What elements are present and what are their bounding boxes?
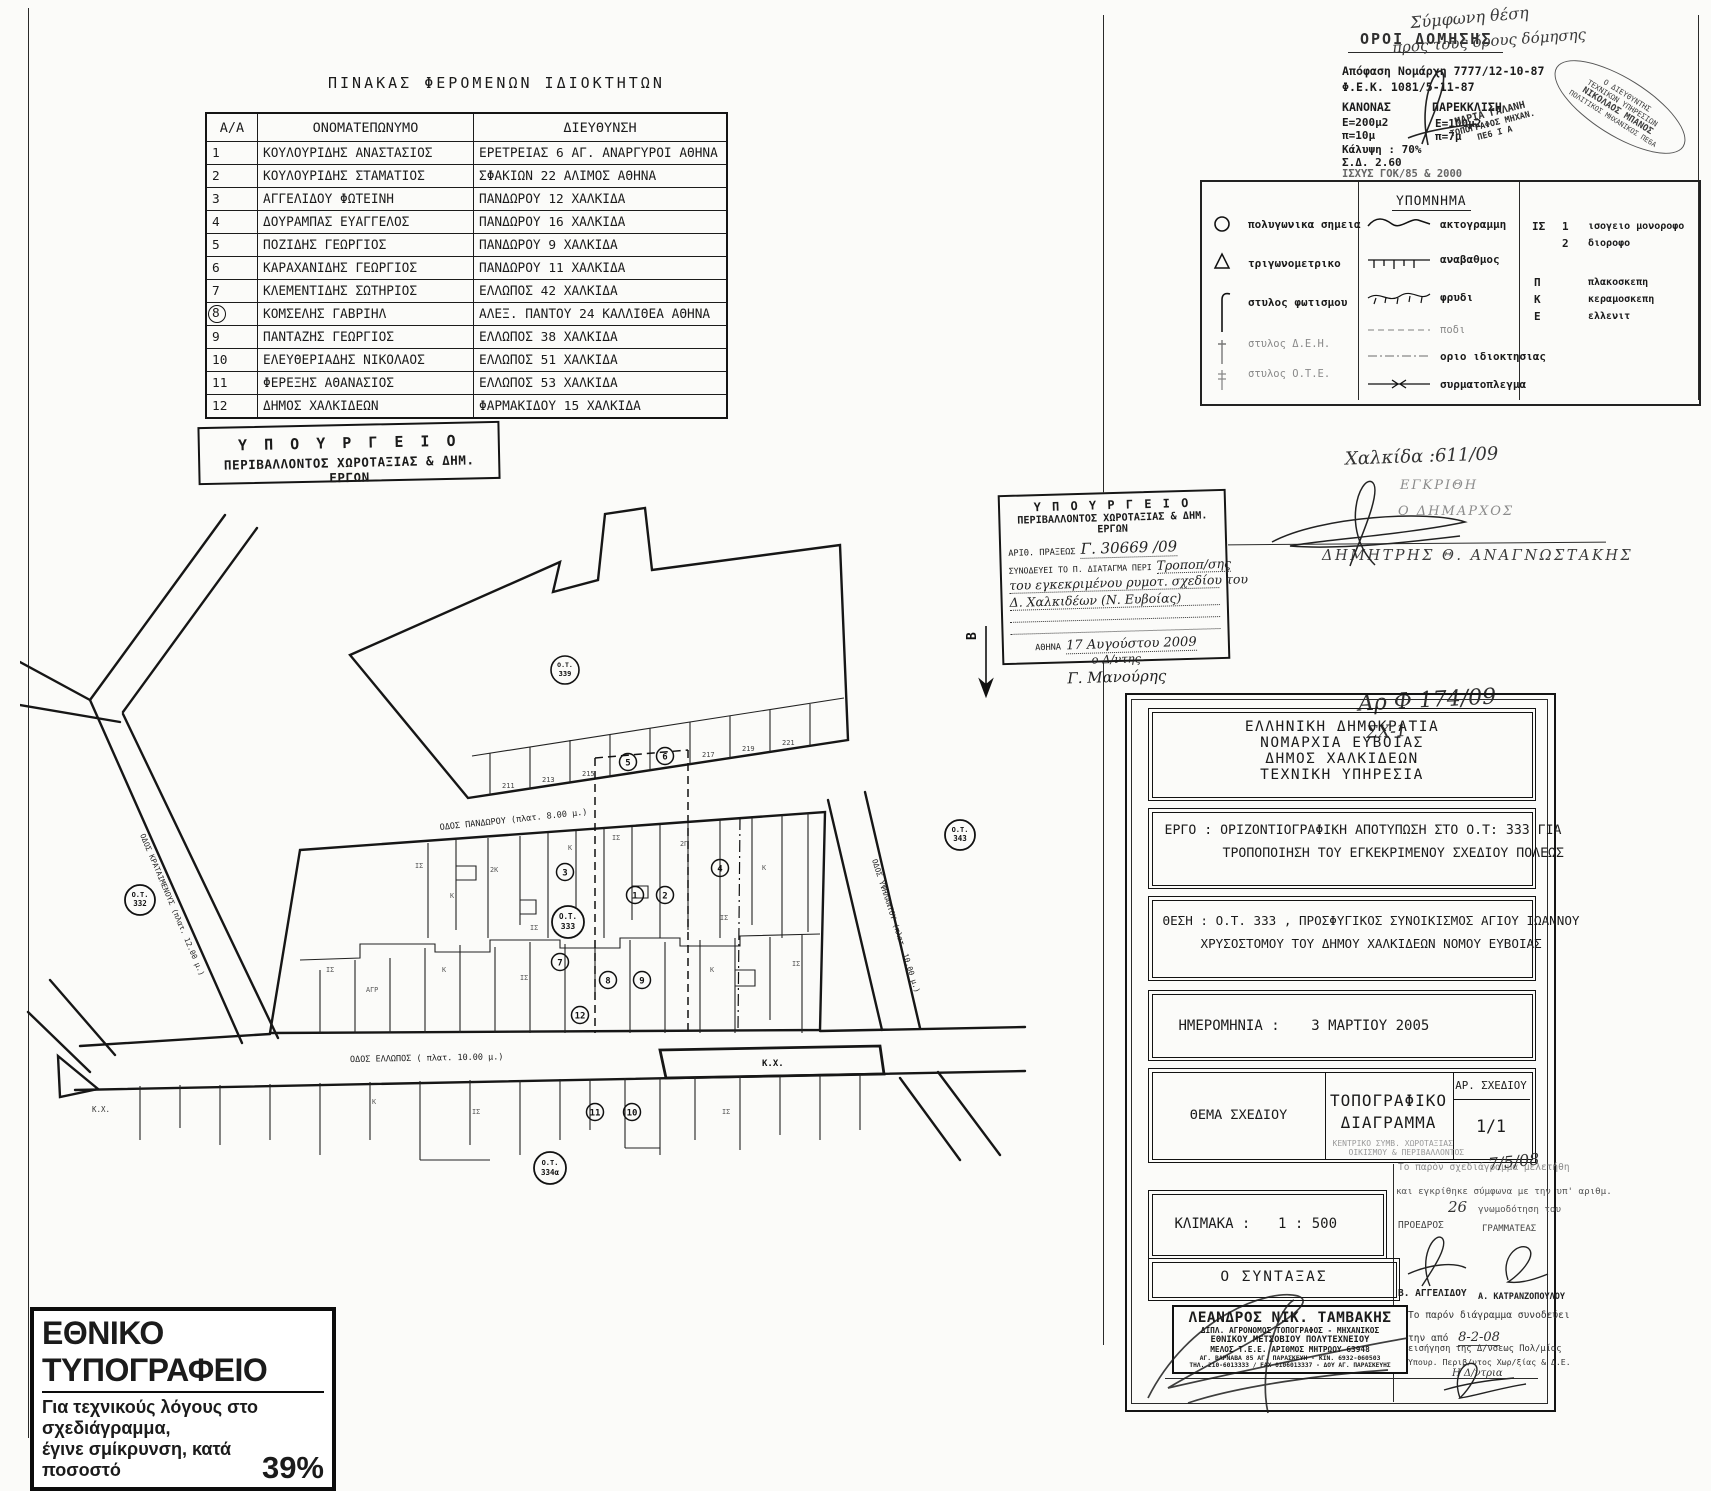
table-row: 10ΕΛΕΥΘΕΡΙΑΔΗΣ ΝΙΚΟΛΑΟΣΕΛΛΩΠΟΣ 51 ΧΑΛΚΙΔ… [206, 349, 727, 372]
oroi-isxys: ΙΣΧΥΣ ΓΟΚ/85 & 2000 [1342, 168, 1462, 180]
north-arrow: Β [962, 618, 1008, 708]
circled-9: 9 [634, 972, 651, 989]
svg-text:ΙΣ: ΙΣ [720, 914, 728, 922]
approval-name-katranzopoulou: Α. ΚΑΤΡΑΝΖΟΠΟΥΛΟΥ [1478, 1292, 1565, 1302]
brow-icon [1368, 293, 1430, 304]
klimaka-label: ΚΛΙΜΑΚΑ : [1175, 1216, 1251, 1232]
upper-block-outline [350, 508, 848, 798]
national-printing-box: ΕΘΝΙΚΟ ΤΥΠΟΓΡΑΦΕΙΟ Για τεχνικούς λόγους … [30, 1307, 336, 1491]
signature-top-right [1398, 60, 1478, 150]
cell-name: ΑΓΓΕΛΙΔΟΥ ΦΩΤΕΙΝΗ [258, 188, 474, 211]
svg-text:Κ: Κ [450, 892, 455, 900]
svg-text:2: 2 [662, 892, 667, 902]
approval-note-1: Το παρόν σχεδιάγραμμα μελετήθη [1398, 1162, 1570, 1173]
thesi-box: ΘΕΣΗ : Ο.Τ. 333 , ΠΡΟΣΦΥΓΙΚΟΣ ΣΥΝΟΙΚΙΣΜΟ… [1148, 896, 1536, 981]
faint-stamp-line2: ΟΙΚΙΣΜΟΥ & ΠΕΡΙΒΑΛΛΟΝΤΟΣ [1349, 1148, 1465, 1157]
svg-text:ΙΣ: ΙΣ [722, 1108, 730, 1116]
cell-no: 5 [206, 234, 258, 257]
legend-k-label: κεραμοσκεπη [1588, 294, 1654, 305]
svg-text:Κ: Κ [372, 1098, 377, 1106]
thema-box: ΘΕΜΑ ΣΧΕΔΙΟΥ ΤΟΠΟΓΡΑΦΙΚΟ ΔΙΑΓΡΑΜΜΑ ΑΡ. Σ… [1148, 1068, 1536, 1163]
agency-line2: ΝΟΜΑΡΧΙΑ ΕΥΒΟΙΑΣ [1153, 735, 1532, 751]
signature-directress [1430, 1356, 1530, 1402]
date-label: ΗΜΕΡΟΜΗΝΙΑ : [1179, 1018, 1280, 1034]
svg-text:215: 215 [582, 770, 595, 778]
property-dashdot-line [738, 818, 740, 1030]
thema-value1: ΤΟΠΟΓΡΑΦΙΚΟ [1325, 1091, 1453, 1110]
cell-no: 7 [206, 280, 258, 303]
svg-text:2Κ: 2Κ [490, 866, 499, 874]
stamp-praxis-label: ΑΡΙΘ. ΠΡΑΞΕΩΣ [1008, 547, 1076, 559]
coastline-icon [1368, 219, 1430, 226]
table-row: 9ΠΑΝΤΑΖΗΣ ΓΕΩΡΓΙΟΣΕΛΛΩΠΟΣ 38 ΧΑΛΚΙΔΑ [206, 326, 727, 349]
svg-text:ΙΣ: ΙΣ [472, 1108, 480, 1116]
ergo-box: ΕΡΓΟ : ΟΡΙΖΟΝΤΙΟΓΡΑΦΙΚΗ ΑΠΟΤΥΠΩΣΗ ΣΤΟ Ο.… [1148, 808, 1536, 889]
cell-addr: ΕΛΛΩΠΟΣ 42 ΧΑΛΚΙΔΑ [474, 280, 728, 303]
svg-text:219: 219 [742, 745, 755, 753]
col-name: ΟΝΟΜΑΤΕΠΩΝΥΜΟ [258, 113, 474, 142]
block-circle-343: Ο.Τ. 343 [945, 820, 975, 850]
oroi-e-kanonas: Ε=200μ2 [1342, 116, 1388, 129]
thesi-line1: ΘΕΣΗ : Ο.Τ. 333 , ΠΡΟΣΦΥΓΙΚΟΣ ΣΥΝΟΙΚΙΣΜΟ… [1163, 913, 1532, 928]
cell-no: 1 [206, 142, 258, 165]
svg-text:Ο.Τ.: Ο.Τ. [557, 661, 573, 669]
stamp-praxis-value: Γ. 30669 /09 [1080, 537, 1177, 559]
svg-text:6: 6 [662, 753, 667, 763]
legend-label-fence: συρματοπλεγμα [1440, 378, 1526, 391]
cell-no: 6 [206, 257, 258, 280]
cell-addr: ΕΛΛΩΠΟΣ 38 ΧΑΛΚΙΔΑ [474, 326, 728, 349]
cadastral-map: ΟΔΟΣ ΠΑΝΔΩΡΟΥ (πλατ. 8.00 μ.) ΟΔΟΣ ΕΛΛΩΠ… [20, 500, 1100, 1200]
legend-label-property: οριο ιδιοκτησιας [1440, 350, 1546, 363]
svg-text:ΙΣ: ΙΣ [326, 966, 334, 974]
cell-no: 12 [206, 395, 258, 419]
road-west [20, 662, 120, 722]
svg-text:343: 343 [953, 834, 967, 843]
circled-12: 12 [572, 1007, 589, 1024]
stamp-mpanos: Ο ΔΙΕΥΘΥΝΤΗΣ ΤΕΧΝΙΚΩΝ ΥΠΗΡΕΣΙΩΝ ΝΙΚΟΛΑΟΣ… [1541, 43, 1699, 172]
light-pole-icon [1222, 294, 1230, 332]
cell-addr: ΣΦΑΚΙΩΝ 22 ΑΛΙΜΟΣ ΑΘΗΝΑ [474, 165, 728, 188]
approval-note-3: γνωμοδότηση του [1478, 1204, 1561, 1215]
svg-text:ΙΣ: ΙΣ [792, 960, 800, 968]
svg-text:12: 12 [575, 1012, 586, 1022]
legend-is-2-label: διοροφο [1588, 238, 1630, 249]
legend-label-ote: στυλος Ο.Τ.Ε. [1248, 368, 1330, 380]
svg-text:10: 10 [627, 1109, 638, 1119]
main-block-lower-plot-lines [320, 935, 802, 1033]
svg-text:332: 332 [133, 899, 147, 908]
scanned-topographic-sheet: { "owners": { "title": "ΠΙΝΑΚΑΣ ΦΕΡΟΜΕΝΩ… [0, 0, 1711, 1444]
oroi-kanonas: ΚΑΝΟΝΑΣ [1342, 100, 1391, 114]
cell-no: 9 [206, 326, 258, 349]
owners-table-title: ΠΙΝΑΚΑΣ ΦΕΡΟΜΕΝΩΝ ΙΔΙΟΚΤΗΤΩΝ [328, 74, 665, 92]
ministry-approval-stamp: Υ Π Ο Υ Ρ Γ Ε Ι Ο ΠΕΡΙΒΑΛΛΟΝΤΟΣ ΧΩΡΟΤΑΞΙ… [998, 489, 1231, 665]
road-southwest-stub [28, 980, 115, 1072]
road-northwest [90, 515, 257, 712]
svg-text:Κ: Κ [442, 966, 447, 974]
svg-text:217: 217 [702, 751, 715, 759]
cell-no: 11 [206, 372, 258, 395]
cell-name: ΚΑΡΑΧΑΝΙΔΗΣ ΓΕΩΡΓΙΟΣ [258, 257, 474, 280]
agency-line3: ΔΗΜΟΣ ΧΑΛΚΙΔΕΩΝ [1153, 751, 1532, 767]
table-row: 11ΦΕΡΕΞΗΣ ΑΘΑΝΑΣΙΟΣΕΛΛΩΠΟΣ 53 ΧΑΛΚΙΔΑ [206, 372, 727, 395]
street-label-ellopos: ΟΔΟΣ ΕΛΛΩΠΟΣ ( πλατ. 10.00 μ.) [350, 1052, 504, 1065]
svg-text:Κ: Κ [762, 864, 767, 872]
wire-fence-icon [1368, 380, 1430, 388]
table-row: 8ΚΟΜΣΕΛΗΣ ΓΑΒΡΙΗΛΑΛΕΞ. ΠΑΝΤΟΥ 24 ΚΑΛΛΙΘΕ… [206, 303, 727, 326]
table-row: 5ΠΟΖΙΔΗΣ ΓΕΩΡΓΙΟΣΠΑΝΔΩΡΟΥ 9 ΧΑΛΚΙΔΑ [206, 234, 727, 257]
svg-text:Ο.Τ.: Ο.Τ. [132, 891, 149, 899]
svg-text:213: 213 [542, 776, 555, 784]
table-row: 4ΔΟΥΡΑΜΠΑΣ ΕΥΑΓΓΕΛΟΣΠΑΝΔΩΡΟΥ 16 ΧΑΛΚΙΔΑ [206, 211, 727, 234]
svg-text:3: 3 [562, 869, 567, 879]
circled-10: 10 [624, 1104, 641, 1121]
printing-line2: έγινε σμίκρυνση, κατά ποσοστό [42, 1439, 256, 1481]
svg-text:Ο.Τ.: Ο.Τ. [559, 912, 577, 921]
cell-addr: ΕΡΕΤΡΕΙΑΣ 6 ΑΓ. ΑΝΑΡΓΥΡΟΙ ΑΘΗΝΑ [474, 142, 728, 165]
agency-line1: ΕΛΛΗΝΙΚΗ ΔΗΜΟΚΡΑΤΙΑ [1153, 719, 1532, 735]
cell-name: ΠΟΖΙΔΗΣ ΓΕΩΡΓΙΟΣ [258, 234, 474, 257]
street-label-ypsilantou: ΟΔΟΣ ΥΨΗΛΑΝΤΟΥ (πλατ. 10.00 μ.) [870, 858, 922, 994]
trig-point-icon [1215, 254, 1229, 268]
legend-divider-1 [1358, 182, 1359, 400]
cell-addr: ΠΑΝΔΩΡΟΥ 12 ΧΑΛΚΙΔΑ [474, 188, 728, 211]
svg-text:ΙΣ: ΙΣ [612, 834, 620, 842]
svg-text:Ο.Τ.: Ο.Τ. [542, 1159, 559, 1167]
thema-value2: ΔΙΑΓΡΑΜΜΑ [1325, 1113, 1453, 1132]
cell-addr: ΕΛΛΩΠΟΣ 53 ΧΑΛΚΙΔΑ [474, 372, 728, 395]
north-arrow-label: Β [965, 632, 980, 640]
thema-label: ΘΕΜΑ ΣΧΕΔΙΟΥ [1153, 1107, 1325, 1123]
owners-header-row: Α/Α ΟΝΟΜΑΤΕΠΩΝΥΜΟ ΔΙΕΥΘΥΝΣΗ [206, 113, 727, 142]
ote-pole-icon [1218, 370, 1226, 390]
legend-divider-2 [1519, 182, 1520, 400]
svg-text:Ο.Τ.: Ο.Τ. [952, 826, 969, 834]
svg-text:ΙΣ: ΙΣ [520, 974, 528, 982]
legend-label-step: αναβαθμος [1440, 253, 1500, 266]
cell-no: 10 [206, 349, 258, 372]
kx-strip-label: Κ.Χ. [762, 1059, 784, 1069]
street-label-pandorou: ΟΔΟΣ ΠΑΝΔΩΡΟΥ (πλατ. 8.00 μ.) [439, 808, 588, 833]
stamp-ministry-line2: ΠΕΡΙΒΑΛΛΟΝΤΟΣ ΧΩΡΟΤΑΞΙΑΣ & ΔΗΜ. ΕΡΓΩΝ [1007, 510, 1218, 538]
svg-text:7: 7 [557, 959, 562, 969]
polygon-point-icon [1215, 217, 1229, 231]
owners-table: Α/Α ΟΝΟΜΑΤΕΠΩΝΥΜΟ ΔΙΕΥΘΥΝΣΗ 1ΚΟΥΛΟΥΡΙΔΗΣ… [205, 112, 728, 419]
svg-text:4: 4 [717, 865, 723, 875]
approval-number: 26 [1448, 1198, 1467, 1216]
table-row: 7ΚΛΕΜΕΝΤΙΔΗΣ ΣΩΤΗΡΙΟΣΕΛΛΩΠΟΣ 42 ΧΑΛΚΙΔΑ [206, 280, 727, 303]
svg-text:ΙΣ: ΙΣ [415, 862, 423, 870]
oroi-p-kanonas: π=10μ [1342, 129, 1375, 142]
ministry-left-box: Υ Π Ο Υ Ρ Γ Ε Ι Ο ΠΕΡΙΒΑΛΛΟΝΤΟΣ ΧΩΡΟΤΑΞΙ… [197, 421, 500, 485]
legend-symbols-col2 [1366, 212, 1432, 394]
legend-symbols-col1 [1210, 212, 1240, 392]
col-address: ΔΙΕΥΘΥΝΣΗ [474, 113, 728, 142]
cell-no: 2 [206, 165, 258, 188]
svg-text:211: 211 [502, 782, 515, 790]
cell-name: ΚΟΥΛΟΥΡΙΔΗΣ ΣΤΑΜΑΤΙΟΣ [258, 165, 474, 188]
north-arrow-shaft [980, 626, 992, 696]
cell-addr: ΠΑΝΔΩΡΟΥ 9 ΧΑΛΚΙΔΑ [474, 234, 728, 257]
circled-11: 11 [587, 1104, 604, 1121]
cell-name: ΔΟΥΡΑΜΠΑΣ ΕΥΑΓΓΕΛΟΣ [258, 211, 474, 234]
circled-7: 7 [552, 954, 569, 971]
main-block-upper-plot-lines [428, 813, 808, 938]
thesi-line2: ΧΡΥΣΟΣΤΟΜΟΥ ΤΟΥ ΔΗΜΟΥ ΧΑΛΚΙΔΕΩΝ ΝΟΜΟΥ ΕΥ… [1201, 936, 1532, 951]
upper-strip-plot-numbers: 211213 215217 219221 [502, 739, 795, 790]
legend-k-key: Κ [1534, 293, 1541, 306]
klimaka-box: ΚΛΙΜΑΚΑ : 1 : 500 [1148, 1190, 1387, 1259]
table-row: 1ΚΟΥΛΟΥΡΙΔΗΣ ΑΝΑΣΤΑΣΙΟΣΕΡΕΤΡΕΙΑΣ 6 ΑΓ. Α… [206, 142, 727, 165]
circled-1: 1 [627, 887, 644, 904]
legend-label-coastline: ακτογραμμη [1440, 218, 1506, 231]
date-box: ΗΜΕΡΟΜΗΝΙΑ : 3 ΜΑΡΤΙΟΥ 2005 [1148, 990, 1536, 1061]
legend-label-foot: ποδι [1440, 324, 1465, 336]
cell-name: ΕΛΕΥΘΕΡΙΑΔΗΣ ΝΙΚΟΛΑΟΣ [258, 349, 474, 372]
svg-text:333: 333 [561, 922, 576, 931]
block-circle-333: Ο.Τ. 333 [552, 906, 584, 938]
table-row: 3ΑΓΓΕΛΙΔΟΥ ΦΩΤΕΙΝΗΠΑΝΔΩΡΟΥ 12 ΧΑΛΚΙΔΑ [206, 188, 727, 211]
legend-p-label: πλακοσκεπη [1588, 277, 1648, 288]
date-value: 3 ΜΑΡΤΙΟΥ 2005 [1311, 1018, 1429, 1034]
ergo-line1: ΕΡΓΟ : ΟΡΙΖΟΝΤΙΟΓΡΑΦΙΚΗ ΑΠΟΤΥΠΩΣΗ ΣΤΟ Ο.… [1165, 823, 1532, 838]
printing-percent: 39% [262, 1455, 324, 1481]
ar-sxediou-rule [1453, 1099, 1530, 1100]
cell-addr: ΠΑΝΔΩΡΟΥ 11 ΧΑΛΚΙΔΑ [474, 257, 728, 280]
legend-is-2: 2 [1562, 237, 1569, 250]
circled-6: 6 [657, 748, 674, 765]
cell-name: ΚΟΜΣΕΛΗΣ ΓΑΒΡΙΗΛ [258, 303, 474, 326]
ministry-left-line2: ΠΕΡΙΒΑΛΛΟΝΤΟΣ ΧΩΡΟΤΑΞΙΑΣ & ΔΗΜ. ΕΡΓΩΝ [200, 452, 499, 488]
circled-5: 5 [620, 754, 637, 771]
step-icon [1368, 260, 1430, 269]
legend-e-key: Ε [1534, 310, 1541, 323]
legend-label-trig: τριγωνομετρικο [1248, 257, 1341, 270]
svg-text:221: 221 [782, 739, 795, 747]
legend-is-key: ΙΣ [1532, 220, 1545, 233]
street-label-krataimenous: ΟΔΟΣ ΚΡΑΤΑΙΜΕΝΟΥΣ (πλατ. 12.00 μ.) [138, 832, 206, 977]
road-left-street [90, 700, 278, 1043]
modification-dashed-boundary [595, 750, 688, 1033]
ergo-line2: ΤΡΟΠΟΠΟΙΗΣΗ ΤΟΥ ΕΓΚΕΚΡΙΜΕΝΟΥ ΣΧΕΔΙΟΥ ΠΟΛ… [1223, 846, 1532, 861]
circled-2: 2 [657, 887, 674, 904]
approval-note-2: και εγκρίθηκε σύμφωνα με την υπ' αριθμ. [1396, 1186, 1612, 1197]
legend-is-1-label: ισογειο μονοροφο [1588, 221, 1684, 232]
deh-pole-icon [1218, 340, 1226, 364]
svg-text:9: 9 [639, 977, 644, 987]
cell-no: 3 [206, 188, 258, 211]
svg-text:Κ: Κ [568, 844, 573, 852]
stamp-athens-label: ΑΘΗΝΑ [1035, 643, 1061, 654]
svg-text:Κ: Κ [710, 966, 715, 974]
block-circle-332: Ο.Τ. 332 [125, 885, 155, 915]
block-circle-339: Ο.Τ. 339 [551, 656, 579, 684]
cell-name: ΦΕΡΕΞΗΣ ΑΘΑΝΑΣΙΟΣ [258, 372, 474, 395]
svg-text:ΙΣ: ΙΣ [530, 924, 538, 932]
main-block-mid-boundary [300, 934, 820, 960]
circled-row-number: 8 [208, 305, 226, 323]
cell-addr: ΑΛΕΞ. ΠΑΝΤΟΥ 24 ΚΑΛΛΙΘΕΑ ΑΘΗΝΑ [474, 303, 728, 326]
cell-name: ΚΟΥΛΟΥΡΙΔΗΣ ΑΝΑΣΤΑΣΙΟΣ [258, 142, 474, 165]
legend-label-lightpole: στυλος φωτισμου [1248, 296, 1347, 309]
cell-addr: ΠΑΝΔΩΡΟΥ 16 ΧΑΛΚΙΔΑ [474, 211, 728, 234]
cell-name: ΠΑΝΤΑΖΗΣ ΓΕΩΡΓΙΟΣ [258, 326, 474, 349]
legend-label-brow: φρυδι [1440, 291, 1473, 304]
agency-line4: ΤΕΧΝΙΚΗ ΥΠΗΡΕΣΙΑ [1153, 767, 1532, 783]
legend-e-label: ελλενιτ [1588, 311, 1630, 322]
kx-left-label: Κ.Χ. [92, 1105, 110, 1114]
svg-text:11: 11 [590, 1109, 601, 1119]
circled-8: 8 [600, 972, 617, 989]
handnote-protocol: Χαλκίδα :611/09 [1345, 443, 1499, 469]
svg-text:2Π: 2Π [680, 840, 688, 848]
ar-sxediou-value: 1/1 [1453, 1117, 1530, 1136]
printing-title: ΕΘΝΙΚΟ ΤΥΠΟΓΡΑΦΕΙΟ [42, 1315, 324, 1393]
ar-sxediou-label: ΑΡ. ΣΧΕΔΙΟΥ [1453, 1079, 1530, 1092]
handwritten-oroi-note1: Σύμφωνη θέση [1409, 3, 1529, 32]
table-row: 6ΚΑΡΑΧΑΝΙΔΗΣ ΓΕΩΡΓΙΟΣΠΑΝΔΩΡΟΥ 11 ΧΑΛΚΙΔΑ [206, 257, 727, 280]
svg-text:8: 8 [605, 977, 610, 987]
diagram-note-2: την από [1408, 1333, 1448, 1344]
svg-text:ΑΓΡ: ΑΓΡ [366, 986, 378, 994]
table-row: 12ΔΗΜΟΣ ΧΑΛΚΙΔΕΩΝΦΑΡΜΑΚΙΔΟΥ 15 ΧΑΛΚΙΔΑ [206, 395, 727, 419]
diagram-note-3: εισήγηση της Δ/νσεως Πολ/μίας [1408, 1344, 1562, 1354]
circled-3: 3 [557, 864, 574, 881]
legend-is-1: 1 [1562, 220, 1569, 233]
signature-syntaxas [1128, 1278, 1428, 1418]
legend-title: ΥΠΟΜΝΗΜΑ [1392, 194, 1471, 211]
cell-addr: ΕΛΛΩΠΟΣ 51 ΧΑΛΚΙΔΑ [474, 349, 728, 372]
svg-text:339: 339 [559, 670, 572, 678]
svg-text:1: 1 [632, 892, 637, 902]
cell-name: ΔΗΜΟΣ ΧΑΛΚΙΔΕΩΝ [258, 395, 474, 419]
legend-p-key: Π [1534, 276, 1541, 289]
cell-addr: ΦΑΡΜΑΚΙΔΟΥ 15 ΧΑΛΚΙΔΑ [474, 395, 728, 419]
ministry-left-line1: Υ Π Ο Υ Ρ Γ Ε Ι Ο [200, 431, 498, 455]
cell-no: 4 [206, 211, 258, 234]
agency-box: ΕΛΛΗΝΙΚΗ ΔΗΜΟΚΡΑΤΙΑ ΝΟΜΑΡΧΙΑ ΕΥΒΟΙΑΣ ΔΗΜ… [1148, 708, 1536, 801]
cell-no: 8 [206, 303, 258, 326]
cell-name: ΚΛΕΜΕΝΤΙΔΗΣ ΣΩΤΗΡΙΟΣ [258, 280, 474, 303]
table-row: 2ΚΟΥΛΟΥΡΙΔΗΣ ΣΤΑΜΑΤΙΟΣΣΦΑΚΙΩΝ 22 ΑΛΙΜΟΣ … [206, 165, 727, 188]
diagram-note-1: Το παρόν διάγραμμα συνοδεύει [1408, 1310, 1570, 1321]
svg-text:334α: 334α [541, 1168, 560, 1177]
block-circle-334a: Ο.Τ. 334α [534, 1152, 566, 1184]
printing-line1: Για τεχνικούς λόγους στο σχεδιάγραμμα, [42, 1397, 324, 1439]
signature-mayor [1260, 470, 1470, 570]
faint-stamp-line1: ΚΕΝΤΡΙΚΟ ΣΥΜΒ. ΧΩΡΟΤΑΞΙΑΣ [1333, 1139, 1453, 1148]
legend-label-deh: στυλος Δ.Ε.Η. [1248, 338, 1330, 350]
klimaka-value: 1 : 500 [1278, 1216, 1337, 1232]
svg-text:5: 5 [625, 759, 630, 769]
col-aa: Α/Α [206, 113, 258, 142]
legend-label-polygon: πολυγωνικα σημεια [1248, 218, 1361, 231]
